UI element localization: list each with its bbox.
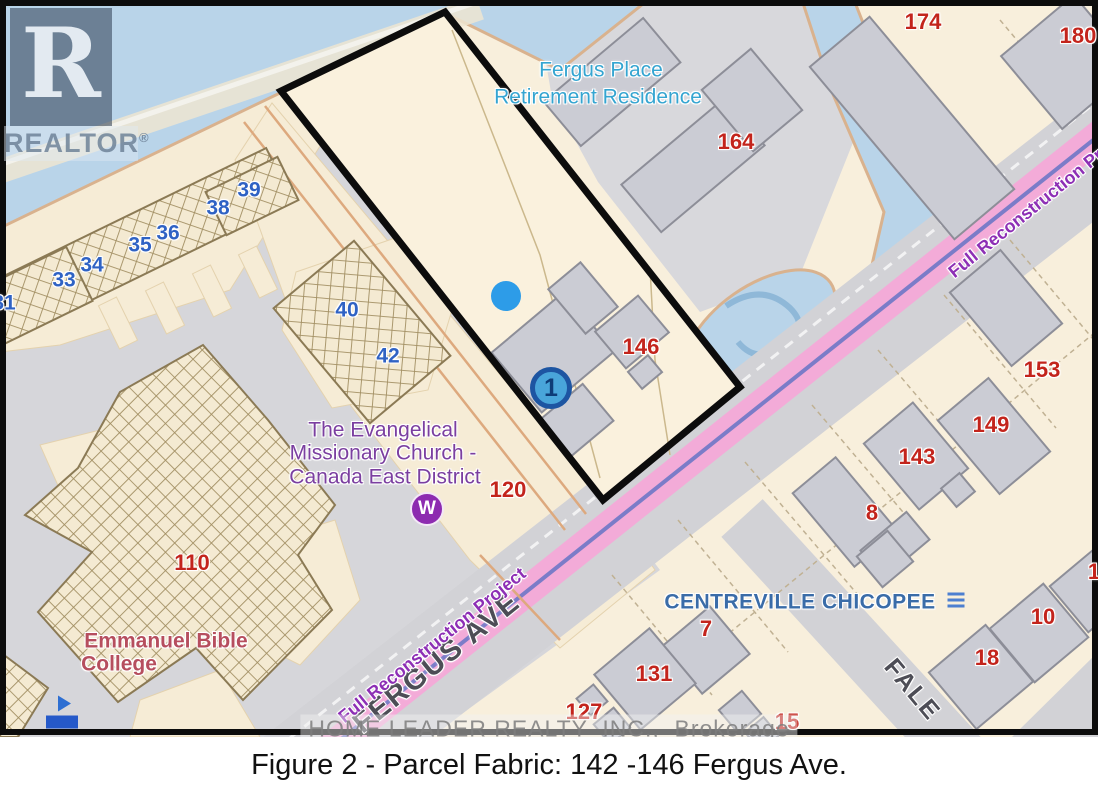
figure-caption: Figure 2 - Parcel Fabric: 142 -146 Fergu… (0, 737, 1098, 793)
label-35: 35 (128, 235, 151, 256)
label-retirement-residence: Retirement Residence (494, 87, 702, 108)
label-college: College (81, 654, 157, 675)
label-full-reconstruction-project: Full Reconstruction Project (335, 564, 529, 726)
label-10: 10 (1031, 606, 1055, 628)
label-153: 153 (1024, 359, 1061, 381)
label-39: 39 (237, 180, 260, 201)
blue-dot-marker (491, 281, 521, 311)
label-8: 8 (866, 502, 878, 524)
realtor-wordmark: REALTOR® (4, 126, 138, 161)
blue-flag-icon (46, 696, 78, 729)
parcel-map: 1741801641461531491438110120713112715181… (0, 0, 1098, 737)
label-33: 33 (52, 270, 75, 291)
figure-page: 1741801641461531491438110120713112715181… (0, 0, 1098, 793)
label-146: 146 (623, 336, 660, 358)
label-131: 131 (636, 663, 673, 685)
label-emmanuel-bible: Emmanuel Bible (84, 631, 247, 652)
label-149: 149 (973, 414, 1010, 436)
label-180: 180 (1060, 25, 1097, 47)
well-marker: W (410, 492, 444, 526)
label-143: 143 (899, 446, 936, 468)
label-18: 18 (975, 647, 999, 669)
realtor-logo-box: R (10, 8, 112, 126)
label-31: 31 (0, 293, 16, 314)
label-1: 1 (1088, 561, 1098, 583)
label-fale: FALE (879, 654, 944, 725)
label-canada-east-district: Canada East District (289, 467, 480, 488)
brokerage-watermark: HOME LEADER REALTY INC., Brokerage (300, 715, 797, 738)
label-fergus-place: Fergus Place (539, 60, 663, 81)
label-full-reconstruction-project: Full Reconstruction Project (945, 119, 1098, 281)
realtor-r-glyph: R (21, 16, 101, 112)
parcel-point-marker: 1 (530, 367, 572, 409)
label-42: 42 (376, 346, 399, 367)
label-38: 38 (206, 198, 229, 219)
list-icon (948, 590, 965, 611)
label-164: 164 (718, 131, 755, 153)
label-36: 36 (156, 223, 179, 244)
label-110: 110 (174, 552, 210, 574)
flag-triangle (58, 696, 71, 712)
realtor-logo: R REALTOR® (4, 4, 138, 156)
label-the-evangelical: The Evangelical (308, 420, 457, 441)
label-centreville-chicopee: CENTREVILLE CHICOPEE (664, 592, 935, 613)
label-7: 7 (700, 618, 712, 640)
label-34: 34 (80, 255, 103, 276)
flag-base (46, 716, 78, 729)
label-40: 40 (335, 300, 358, 321)
label-174: 174 (905, 11, 942, 33)
label-missionary-church-: Missionary Church - (290, 443, 477, 464)
label-120: 120 (490, 479, 527, 501)
